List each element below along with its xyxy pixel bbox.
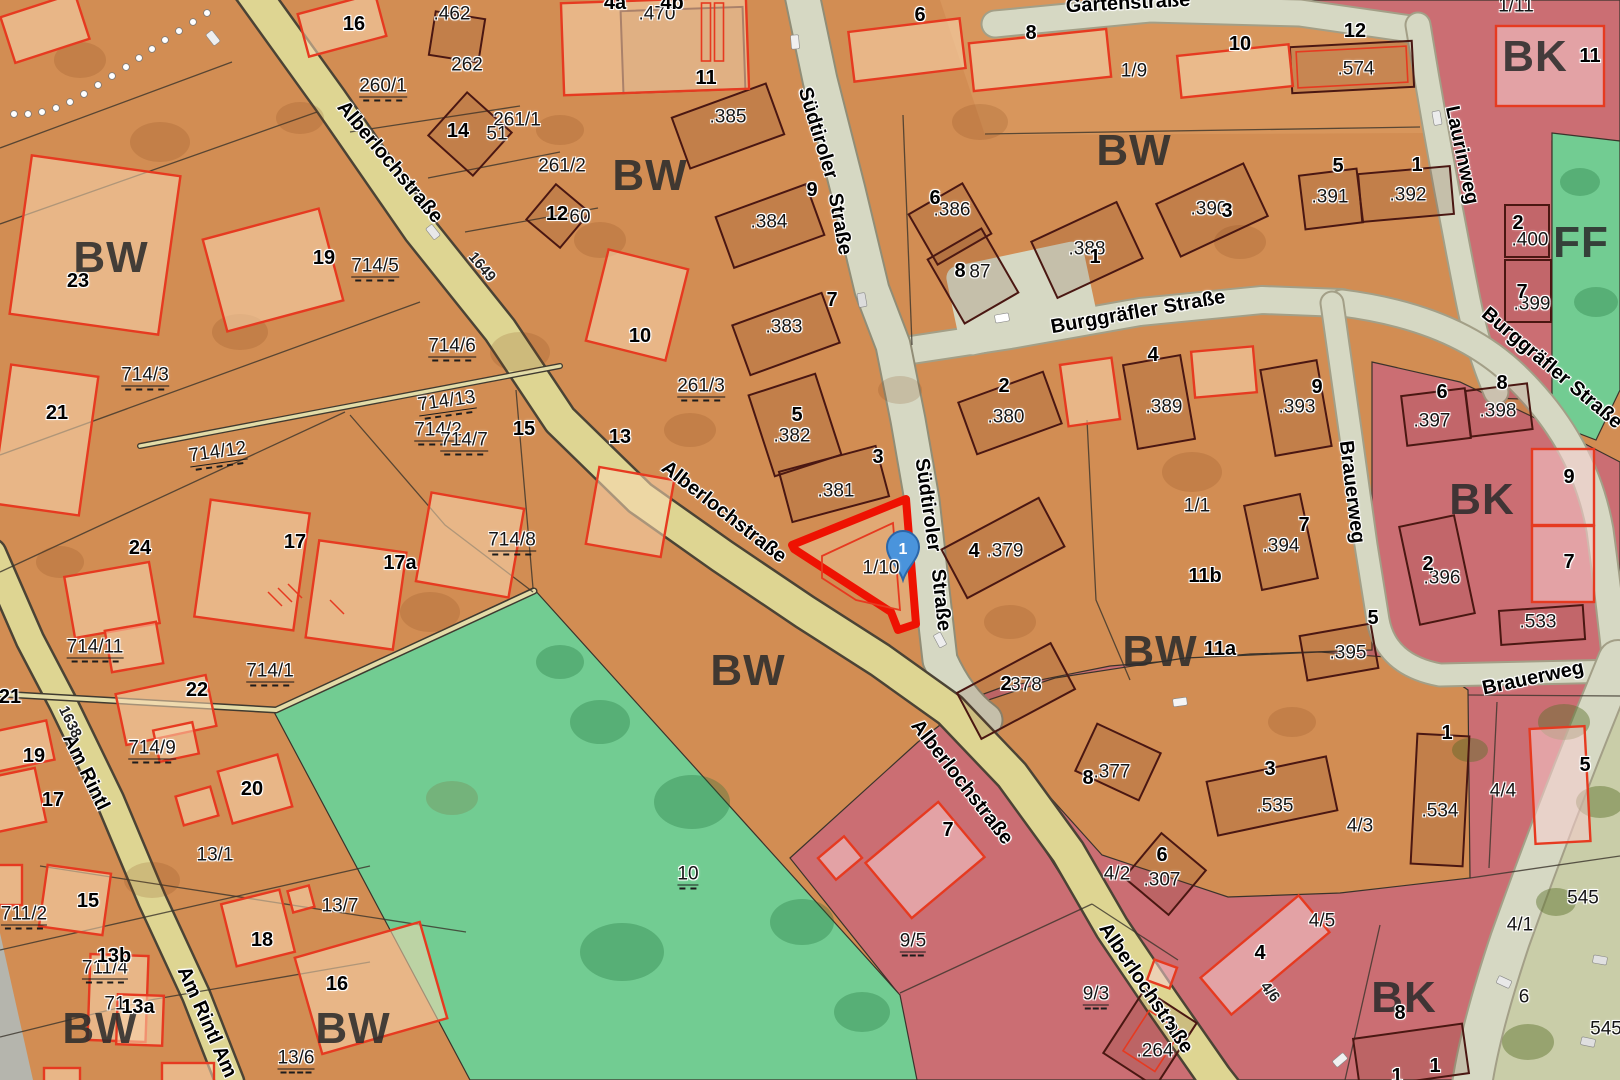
building-391: [1299, 169, 1363, 230]
building-399: [1505, 260, 1551, 322]
building-16-shed: [288, 886, 315, 913]
building-397: [1401, 388, 1471, 445]
building-15-right: [416, 493, 524, 598]
building-23: [10, 155, 181, 334]
map-canvas[interactable]: 1 BWBWBWBWBWBWBWBKBKBKFFAlberlochstraßeA…: [0, 0, 1620, 1080]
building-17: [194, 500, 309, 631]
building-1-1-a: [1060, 358, 1120, 427]
building-13: [586, 467, 674, 557]
building-15-left: [39, 865, 111, 935]
building-bk-9: [1532, 449, 1594, 525]
building-17a: [306, 540, 407, 649]
building-398: [1465, 383, 1532, 436]
building-462: [429, 11, 485, 62]
building-bk-5: [1530, 726, 1591, 844]
building-bk-7: [1532, 526, 1594, 602]
building-711-small: [0, 865, 22, 905]
building-400: [1505, 205, 1549, 257]
building-392: [1358, 166, 1454, 222]
map-graphics: 1: [0, 0, 1620, 1080]
building-534: [1411, 734, 1470, 867]
building-bk-11: [1496, 26, 1604, 106]
building-22b: [153, 722, 199, 762]
building-1-1-b: [1191, 346, 1257, 397]
building-bottom-1: [162, 1063, 214, 1080]
marker-number: 1: [899, 541, 908, 558]
building-13a: [116, 994, 164, 1046]
building-4ab: [561, 0, 749, 95]
building-533: [1499, 605, 1585, 645]
building-24b: [105, 622, 164, 672]
building-bottom-2: [44, 1068, 80, 1080]
